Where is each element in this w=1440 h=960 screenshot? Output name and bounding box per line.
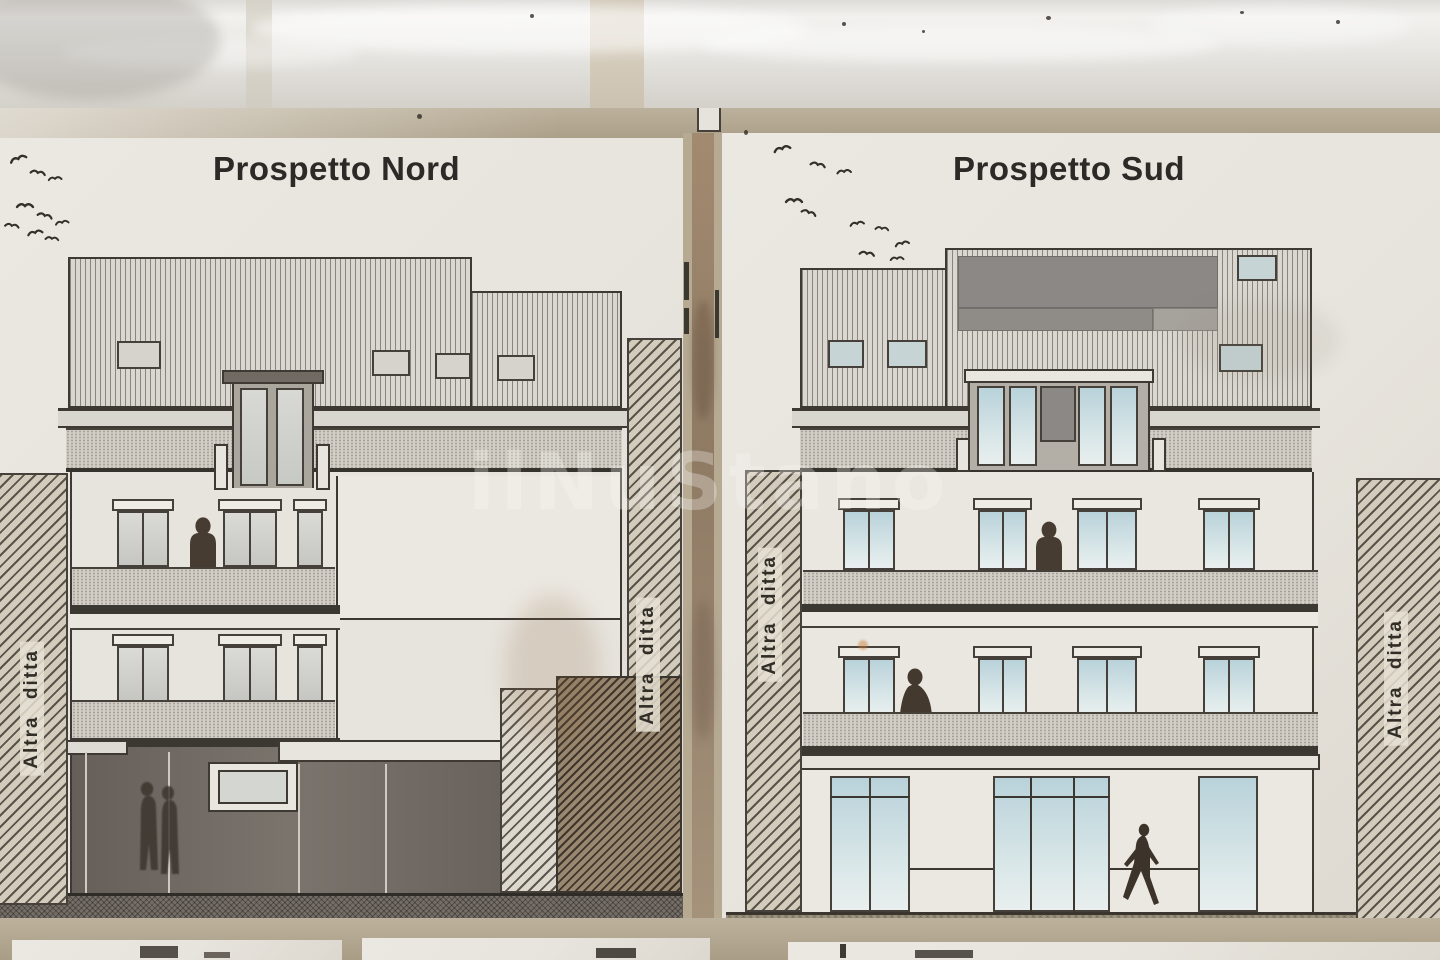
north-roof-window bbox=[117, 341, 161, 369]
window-narrow bbox=[297, 511, 323, 567]
shutter-box bbox=[1198, 646, 1260, 658]
roof-solar-panel bbox=[958, 308, 1153, 331]
canopy-slab bbox=[60, 740, 128, 755]
gap-column-stain bbox=[692, 600, 714, 740]
dormer-glass-pane bbox=[1110, 386, 1138, 466]
balcony-parapet bbox=[72, 700, 335, 740]
title-block-mark bbox=[204, 952, 230, 958]
wall-joint-line bbox=[910, 868, 993, 870]
window bbox=[1203, 658, 1255, 716]
south-roof-window bbox=[887, 340, 927, 368]
dust-speck bbox=[530, 14, 534, 18]
sheet-edge-mark bbox=[684, 262, 689, 300]
window bbox=[978, 658, 1027, 716]
shutter-box bbox=[112, 634, 174, 646]
north-ground-band bbox=[0, 893, 683, 918]
north-eaves-band bbox=[58, 408, 630, 428]
window bbox=[843, 658, 895, 716]
sheet-edge-mark bbox=[684, 308, 689, 334]
title-block-mark bbox=[596, 948, 636, 958]
shutter-box bbox=[218, 634, 282, 646]
shutter-box bbox=[293, 634, 327, 646]
next-sheet-edge bbox=[788, 942, 1440, 960]
dust-speck bbox=[922, 30, 925, 33]
plastic-wrinkle-highlight bbox=[1150, 6, 1410, 46]
storefront-mullion bbox=[1030, 776, 1032, 912]
dust-speck bbox=[1336, 20, 1340, 24]
north-roof-window bbox=[435, 353, 471, 379]
canopy-slab bbox=[796, 754, 1320, 770]
dormer-glass-pane bbox=[977, 386, 1005, 466]
shutter-box bbox=[1072, 646, 1142, 658]
balcony-parapet bbox=[803, 570, 1318, 608]
birds-flock bbox=[762, 138, 917, 278]
storefront-glass bbox=[1198, 776, 1258, 912]
window bbox=[117, 511, 169, 567]
dormer-lintel bbox=[222, 370, 324, 384]
window-narrow bbox=[297, 646, 323, 702]
dust-speck bbox=[1046, 16, 1051, 20]
photo-of-elevation-drawings: Altra ditta Altra ditta Prospetto Nord bbox=[0, 0, 1440, 960]
floor-slab-line bbox=[70, 605, 340, 614]
birds-flock bbox=[2, 146, 87, 246]
shutter-box bbox=[1198, 498, 1260, 510]
dormer-center-panel bbox=[1040, 386, 1076, 442]
north-roof-window bbox=[497, 355, 535, 381]
north-title: Prospetto Nord bbox=[213, 150, 460, 188]
storefront-mullion bbox=[85, 752, 87, 893]
adjacent-property-label: Altra ditta bbox=[1384, 612, 1408, 746]
north-roof-window bbox=[372, 350, 410, 376]
window bbox=[117, 646, 169, 702]
shutter-box bbox=[973, 646, 1032, 658]
transom-line bbox=[830, 796, 910, 798]
walking-person-silhouette bbox=[1116, 822, 1172, 914]
shutter-box bbox=[1072, 498, 1142, 510]
shutter-box bbox=[838, 646, 900, 658]
dormer-door-pane bbox=[240, 388, 268, 486]
canopy-slab bbox=[278, 740, 524, 762]
transom-line bbox=[993, 796, 1110, 798]
dormer-cheek bbox=[956, 438, 970, 472]
south-roof bbox=[800, 268, 947, 408]
window bbox=[223, 646, 277, 702]
photo-stain bbox=[858, 640, 868, 650]
dust-speck bbox=[417, 114, 422, 119]
dust-speck bbox=[744, 130, 748, 135]
shutter-box bbox=[218, 499, 282, 511]
dust-speck bbox=[1240, 11, 1244, 14]
plastic-wrinkle-highlight bbox=[700, 26, 1220, 62]
dormer-lintel bbox=[964, 369, 1154, 383]
window bbox=[1203, 510, 1255, 570]
shutter-box bbox=[973, 498, 1032, 510]
transom-window bbox=[218, 770, 288, 804]
window bbox=[1077, 658, 1137, 716]
adjacent-property-label: Altra ditta bbox=[20, 642, 44, 776]
south-roof-window bbox=[1237, 255, 1277, 281]
storefront-mullion bbox=[298, 764, 300, 893]
watermark-text: ilNuStano bbox=[468, 438, 952, 528]
dormer-glass-pane bbox=[1009, 386, 1037, 466]
wall-strip-sheen bbox=[0, 108, 560, 142]
title-block-mark bbox=[840, 944, 846, 958]
floor-band bbox=[70, 614, 340, 630]
dormer-cheek bbox=[214, 444, 228, 490]
floor-slab-line bbox=[800, 604, 1318, 612]
title-block-mark bbox=[915, 950, 973, 958]
window bbox=[1077, 510, 1137, 570]
floor-slab-line bbox=[800, 746, 1318, 754]
two-people-silhouettes bbox=[134, 778, 186, 876]
dormer-glass-pane bbox=[1078, 386, 1106, 466]
window bbox=[978, 510, 1027, 570]
balcony-parapet bbox=[803, 712, 1318, 750]
band-notch bbox=[697, 108, 721, 132]
balcony-parapet bbox=[72, 567, 335, 607]
roof-solar-panel bbox=[958, 256, 1218, 308]
south-roof-window bbox=[828, 340, 864, 368]
storefront-mullion bbox=[385, 764, 387, 893]
floor-band bbox=[800, 612, 1318, 628]
next-sheet-edge bbox=[362, 938, 710, 960]
sheet-edge-mark bbox=[715, 290, 719, 338]
storefront-mullion bbox=[1073, 776, 1075, 912]
gap-column bbox=[692, 133, 714, 935]
dormer-door-pane bbox=[276, 388, 304, 486]
south-left-adjacent-strip bbox=[745, 470, 802, 912]
photo-stain bbox=[1180, 300, 1340, 380]
dormer-cheek bbox=[316, 444, 330, 490]
photo-stain bbox=[505, 595, 600, 745]
adjacent-property-label: Altra ditta bbox=[758, 548, 782, 682]
dormer-cheek bbox=[1152, 438, 1166, 472]
window bbox=[223, 511, 277, 567]
title-block-mark bbox=[140, 946, 178, 958]
north-roof-step bbox=[470, 291, 622, 408]
dust-speck bbox=[842, 22, 846, 26]
shutter-box bbox=[293, 499, 327, 511]
gap-column-stain bbox=[692, 300, 714, 420]
south-title: Prospetto Sud bbox=[953, 150, 1185, 188]
adjacent-property-label: Altra ditta bbox=[636, 598, 660, 732]
shutter-box bbox=[112, 499, 174, 511]
